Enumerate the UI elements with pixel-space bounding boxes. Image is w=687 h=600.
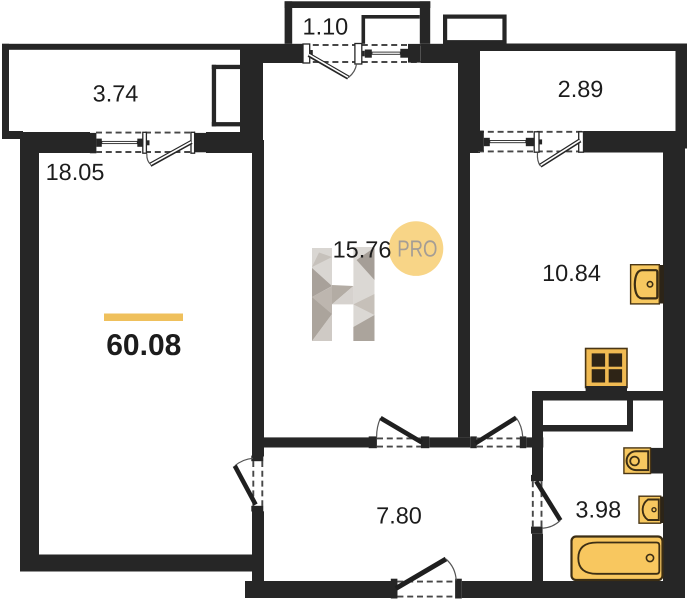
svg-text:15.76: 15.76: [333, 236, 392, 262]
svg-text:7.80: 7.80: [376, 503, 422, 529]
svg-text:3.74: 3.74: [93, 81, 139, 107]
svg-text:PRO: PRO: [397, 235, 437, 261]
svg-text:3.98: 3.98: [575, 497, 621, 523]
svg-text:18.05: 18.05: [46, 159, 105, 185]
svg-text:1.10: 1.10: [303, 14, 349, 40]
svg-text:2.89: 2.89: [558, 76, 604, 102]
svg-text:60.08: 60.08: [106, 329, 181, 362]
svg-text:10.84: 10.84: [542, 260, 601, 286]
